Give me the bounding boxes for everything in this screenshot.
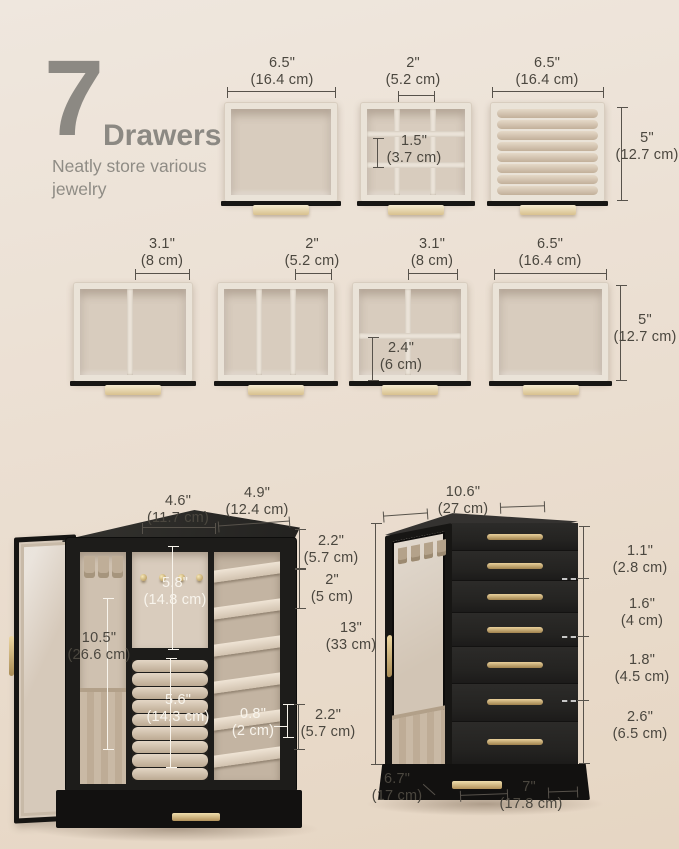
dim-closed-cab-top-width: 10.6"(27 cm) bbox=[438, 484, 489, 518]
drawer-ring-top bbox=[490, 102, 605, 202]
dim-row1-grid-cell-width: 2"(5.2 cm) bbox=[386, 55, 441, 89]
hanging-strap bbox=[84, 556, 95, 578]
measure-line bbox=[383, 512, 428, 516]
measure-line bbox=[227, 91, 336, 92]
dash-marker bbox=[562, 636, 576, 638]
earring-shelf bbox=[214, 672, 280, 693]
door-handle bbox=[9, 636, 14, 676]
dim-closed-cab-bottom-width-in: 7" bbox=[522, 779, 536, 796]
dim-closed-cab-height: 13"(33 cm) bbox=[326, 620, 377, 654]
hanging-strap bbox=[98, 556, 109, 578]
jewelry-drawer bbox=[452, 722, 578, 765]
gold-pull-tab bbox=[248, 385, 304, 395]
earring-shelf-column bbox=[214, 552, 280, 780]
dim-closed-cab-drawer-mid: 1.6"(4 cm) bbox=[621, 596, 663, 630]
earring-shelf bbox=[214, 746, 280, 767]
closed-cabinet-front bbox=[452, 523, 578, 765]
dim-closed-cab-depth: 6.7"(17 cm) bbox=[372, 771, 423, 805]
dim-closed-cab-drawer-large: 1.8"(4.5 cm) bbox=[615, 652, 670, 686]
hanging-strap bbox=[437, 539, 446, 557]
measure-line bbox=[408, 273, 458, 274]
dim-closed-cab-bottom-width-cm: (17.8 cm) bbox=[499, 796, 562, 813]
gold-drawer-handle bbox=[487, 627, 543, 633]
hanging-strap bbox=[112, 556, 123, 578]
measure-line bbox=[398, 95, 435, 96]
measure-tick bbox=[577, 700, 589, 701]
closed-cabinet-side-face bbox=[385, 523, 452, 786]
measure-line bbox=[583, 526, 584, 764]
dim-open-cab-door-height: 10.5"(26.6 cm) bbox=[67, 630, 130, 664]
earring-shelf bbox=[214, 561, 280, 582]
gold-drawer-handle bbox=[487, 699, 543, 705]
cabinet-base bbox=[56, 790, 302, 828]
dim-open-cab-shelf-gap: 2"(5 cm) bbox=[311, 572, 353, 606]
gold-nameplate bbox=[172, 813, 220, 821]
velvet-lining bbox=[231, 109, 331, 195]
measure-line bbox=[299, 569, 300, 609]
dim-open-cab-base: 2.2"(5.7 cm) bbox=[301, 707, 356, 741]
measure-tick bbox=[577, 636, 589, 637]
infographic-canvas: 7 Drawers Neatly store various jewelry 6… bbox=[0, 0, 679, 849]
dim-closed-cab-drawer-small: 1.1"(2.8 cm) bbox=[613, 543, 668, 577]
hanging-strap bbox=[424, 542, 433, 560]
jewelry-drawer bbox=[452, 551, 578, 581]
dim-row2-four-comp: 3.1"(8 cm) bbox=[411, 236, 453, 270]
side-glass-window bbox=[392, 531, 445, 777]
gold-pull-tab bbox=[520, 205, 576, 215]
subtitle-line1: Neatly store various bbox=[52, 155, 207, 178]
earring-shelf bbox=[214, 598, 280, 619]
dim-row2-open-drawer-width: 6.5"(16.4 cm) bbox=[518, 236, 581, 270]
gold-pull-tab bbox=[388, 205, 444, 215]
page-title: Drawers bbox=[103, 119, 221, 153]
jewelry-drawer bbox=[452, 613, 578, 647]
dim-row2-three-comp: 2"(5.2 cm) bbox=[285, 236, 340, 270]
dim-open-cab-panel: 5.8"(14.8 cm) bbox=[143, 575, 206, 609]
storage-pouch bbox=[80, 688, 126, 784]
velvet-lining bbox=[80, 289, 186, 375]
velvet-lining bbox=[499, 289, 602, 375]
dim-row1-ring-drawer-depth: 5"(12.7 cm) bbox=[615, 130, 678, 164]
measure-line bbox=[492, 91, 604, 92]
dim-open-cab-top-left: 4.6"(11.7 cm) bbox=[147, 493, 209, 527]
jewelry-drawer bbox=[452, 523, 578, 551]
drawer-open-top-2 bbox=[492, 282, 609, 382]
dim-row1-grid-cell-height: 1.5"(3.7 cm) bbox=[387, 133, 442, 167]
gold-pull-tab bbox=[523, 385, 579, 395]
side-door-handle bbox=[387, 635, 392, 678]
dim-row2-open-drawer-depth: 5"(12.7 cm) bbox=[613, 312, 676, 346]
gold-drawer-handle bbox=[487, 739, 543, 745]
measure-line bbox=[372, 337, 373, 381]
gold-drawer-handle bbox=[487, 662, 543, 668]
drawer-open-top bbox=[224, 102, 338, 202]
divider bbox=[290, 289, 296, 375]
gold-drawer-handle bbox=[487, 594, 543, 600]
drawer-three-compartments bbox=[217, 282, 335, 382]
drawer-count-number: 7 bbox=[44, 44, 104, 152]
hanging-column bbox=[80, 552, 126, 780]
earring-shelf bbox=[214, 635, 280, 656]
drawer-two-compartments bbox=[73, 282, 193, 382]
dim-row1-open-drawer-width: 6.5"(16.4 cm) bbox=[250, 55, 313, 89]
divider bbox=[256, 289, 262, 375]
jewelry-drawer bbox=[452, 581, 578, 613]
measure-line bbox=[299, 529, 300, 569]
divider bbox=[127, 289, 133, 375]
dim-row1-ring-drawer-width: 6.5"(16.4 cm) bbox=[515, 55, 578, 89]
subtitle-line2: jewelry bbox=[52, 178, 207, 201]
gold-nameplate bbox=[452, 781, 502, 789]
measure-line bbox=[298, 704, 299, 750]
gold-drawer-handle bbox=[487, 563, 543, 569]
jewelry-drawer bbox=[452, 647, 578, 684]
dim-open-cab-slot: 0.8"(2 cm) bbox=[232, 706, 274, 740]
dim-open-cab-rolls: 5.6"(14.3 cm) bbox=[146, 692, 209, 726]
measure-line bbox=[377, 138, 378, 168]
hanging-strap bbox=[398, 547, 407, 565]
gold-drawer-handle bbox=[487, 534, 543, 540]
measure-tick bbox=[577, 578, 589, 579]
velvet-lining bbox=[224, 289, 328, 375]
measure-line bbox=[295, 273, 332, 274]
ring-rolls bbox=[497, 109, 598, 195]
measure-line bbox=[107, 598, 108, 750]
measure-line bbox=[494, 273, 607, 274]
dim-closed-cab-drawer-xl: 2.6"(6.5 cm) bbox=[613, 709, 668, 743]
dim-open-cab-shelf-top: 2.2"(5.7 cm) bbox=[304, 533, 359, 567]
dash-marker bbox=[562, 578, 576, 580]
page-subtitle: Neatly store various jewelry bbox=[52, 155, 207, 201]
hanging-strap bbox=[411, 544, 420, 562]
measure-line bbox=[135, 273, 190, 274]
dash-marker bbox=[562, 700, 576, 702]
jewelry-drawer bbox=[452, 684, 578, 722]
measure-tick bbox=[274, 726, 287, 727]
gold-pull-tab bbox=[382, 385, 438, 395]
dim-row2-two-comp: 3.1"(8 cm) bbox=[141, 236, 183, 270]
door-glass bbox=[21, 542, 69, 817]
dim-row2-four-comp-height: 2.4"(6 cm) bbox=[380, 340, 422, 374]
measure-line bbox=[142, 527, 216, 528]
measure-line bbox=[287, 704, 288, 738]
measure-line bbox=[500, 505, 545, 508]
gold-pull-tab bbox=[105, 385, 161, 395]
dim-open-cab-top-right: 4.9"(12.4 cm) bbox=[225, 485, 288, 519]
gold-pull-tab bbox=[253, 205, 309, 215]
